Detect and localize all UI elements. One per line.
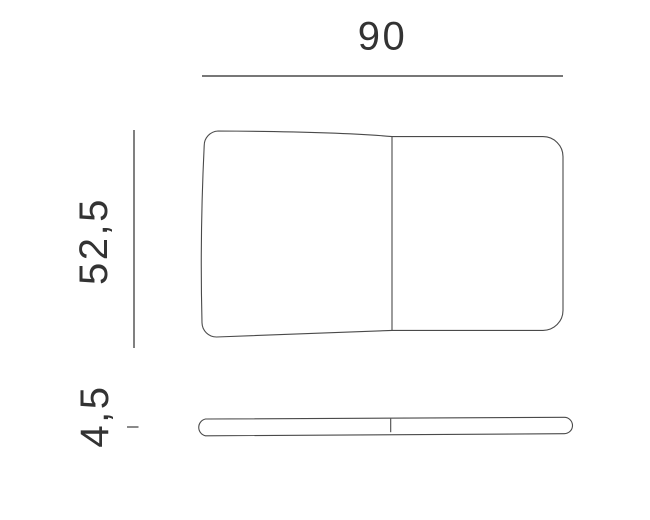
depth-dimension-label: 52,5 bbox=[72, 197, 116, 285]
thickness-dimension-label: 4,5 bbox=[73, 384, 117, 447]
dimension-diagram: 90 52,5 4,5 bbox=[0, 0, 650, 520]
side-view-outline bbox=[199, 417, 573, 436]
top-view-outline bbox=[201, 131, 563, 337]
dimension-diagram-svg: 90 52,5 4,5 bbox=[0, 0, 650, 520]
width-dimension-label: 90 bbox=[358, 15, 408, 59]
